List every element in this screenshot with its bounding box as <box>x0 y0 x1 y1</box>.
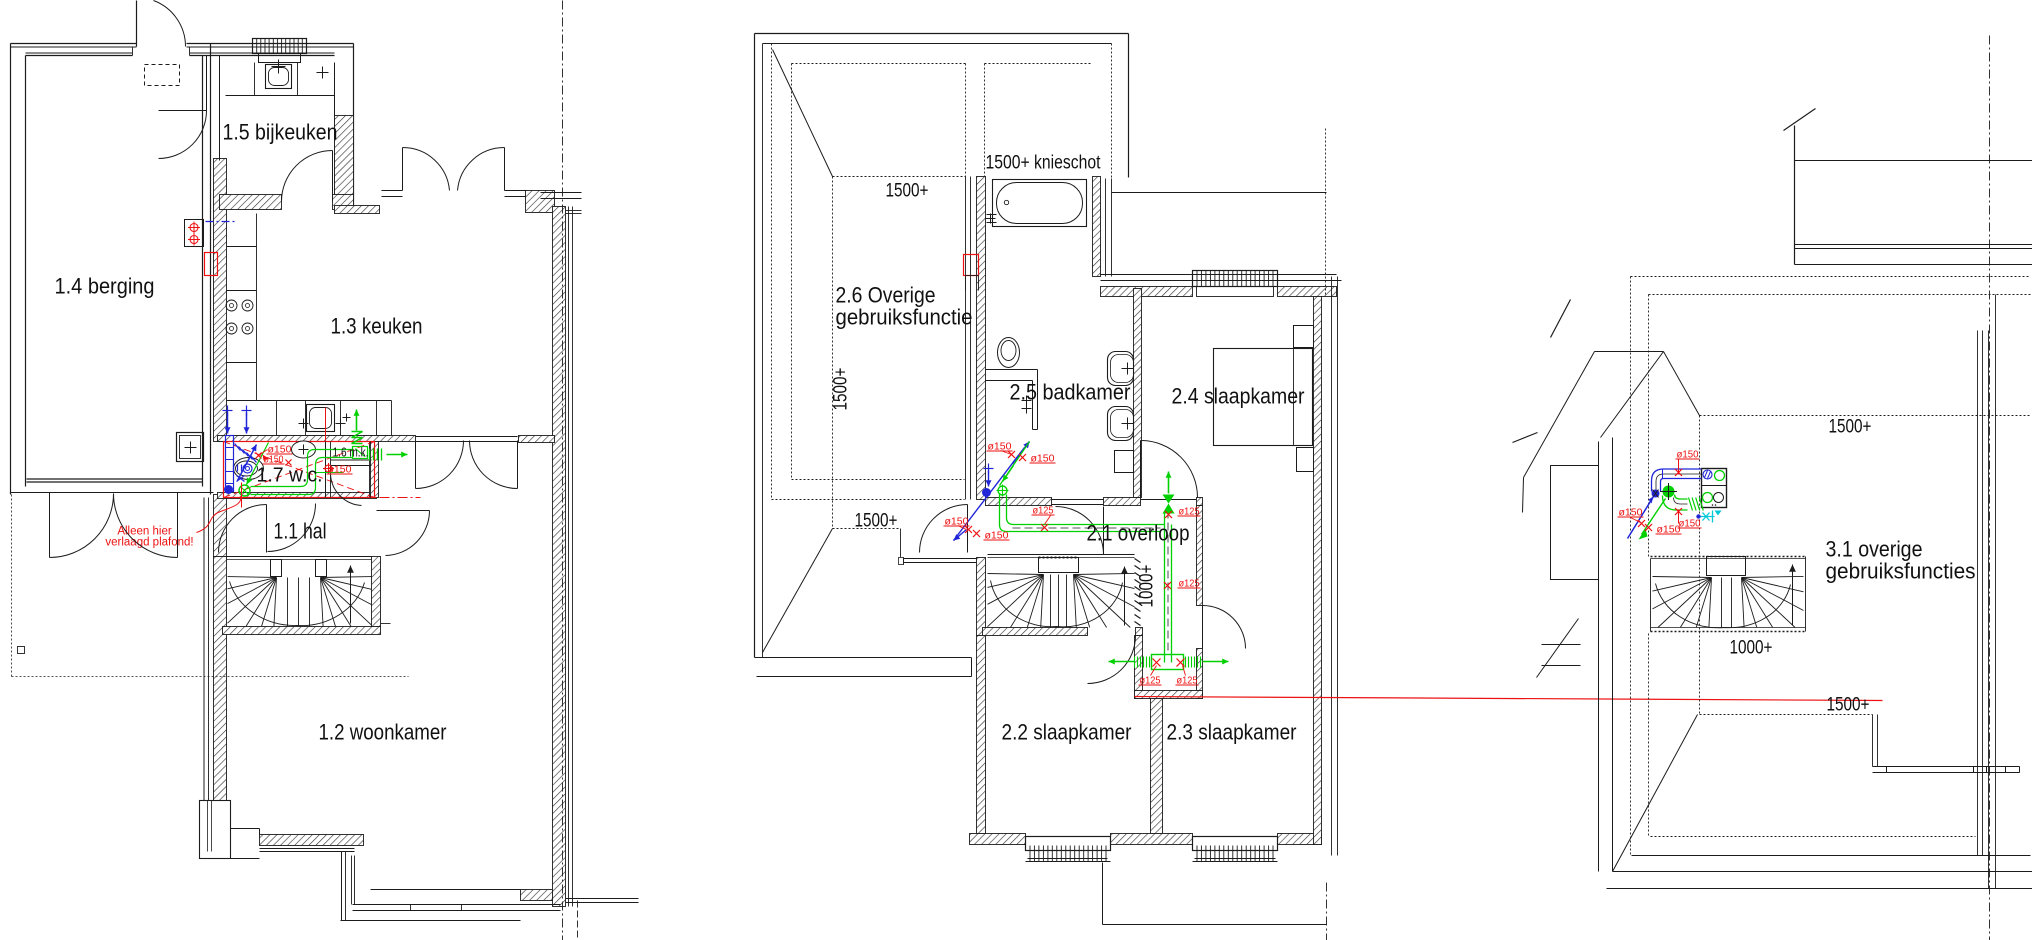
svg-text:1.3 keuken: 1.3 keuken <box>331 314 423 339</box>
svg-text:2.4 slaapkamer: 2.4 slaapkamer <box>1172 384 1305 409</box>
svg-text:1.7 w.c.: 1.7 w.c. <box>257 465 323 487</box>
svg-text:1500+: 1500+ <box>855 511 898 532</box>
svg-text:1500+: 1500+ <box>831 368 852 411</box>
svg-text:2.1 overloop: 2.1 overloop <box>1087 521 1190 546</box>
svg-text:2.3 slaapkamer: 2.3 slaapkamer <box>1167 720 1297 745</box>
svg-text:2.2 slaapkamer: 2.2 slaapkamer <box>1002 720 1132 745</box>
svg-text:1.4 berging: 1.4 berging <box>55 274 155 299</box>
svg-text:verlaagd plafond!: verlaagd plafond! <box>105 537 193 549</box>
svg-text:1500+: 1500+ <box>1827 695 1870 716</box>
svg-text:1500+ knieschot: 1500+ knieschot <box>986 153 1102 174</box>
svg-text:gebruiksfuncties: gebruiksfuncties <box>1826 559 1976 584</box>
svg-text:1.2 woonkamer: 1.2 woonkamer <box>319 720 447 745</box>
svg-text:2.5 badkamer: 2.5 badkamer <box>1010 380 1131 405</box>
svg-text:1000+: 1000+ <box>1137 565 1158 608</box>
svg-text:1500+: 1500+ <box>1829 417 1872 438</box>
svg-text:gebruiksfunctie: gebruiksfunctie <box>836 305 973 330</box>
svg-text:1.6 m.k.: 1.6 m.k. <box>333 445 369 460</box>
svg-text:1.5 bijkeuken: 1.5 bijkeuken <box>223 120 338 145</box>
svg-text:1000+: 1000+ <box>1730 638 1773 659</box>
svg-text:1.1 hal: 1.1 hal <box>274 519 327 544</box>
svg-text:1500+: 1500+ <box>886 181 929 202</box>
